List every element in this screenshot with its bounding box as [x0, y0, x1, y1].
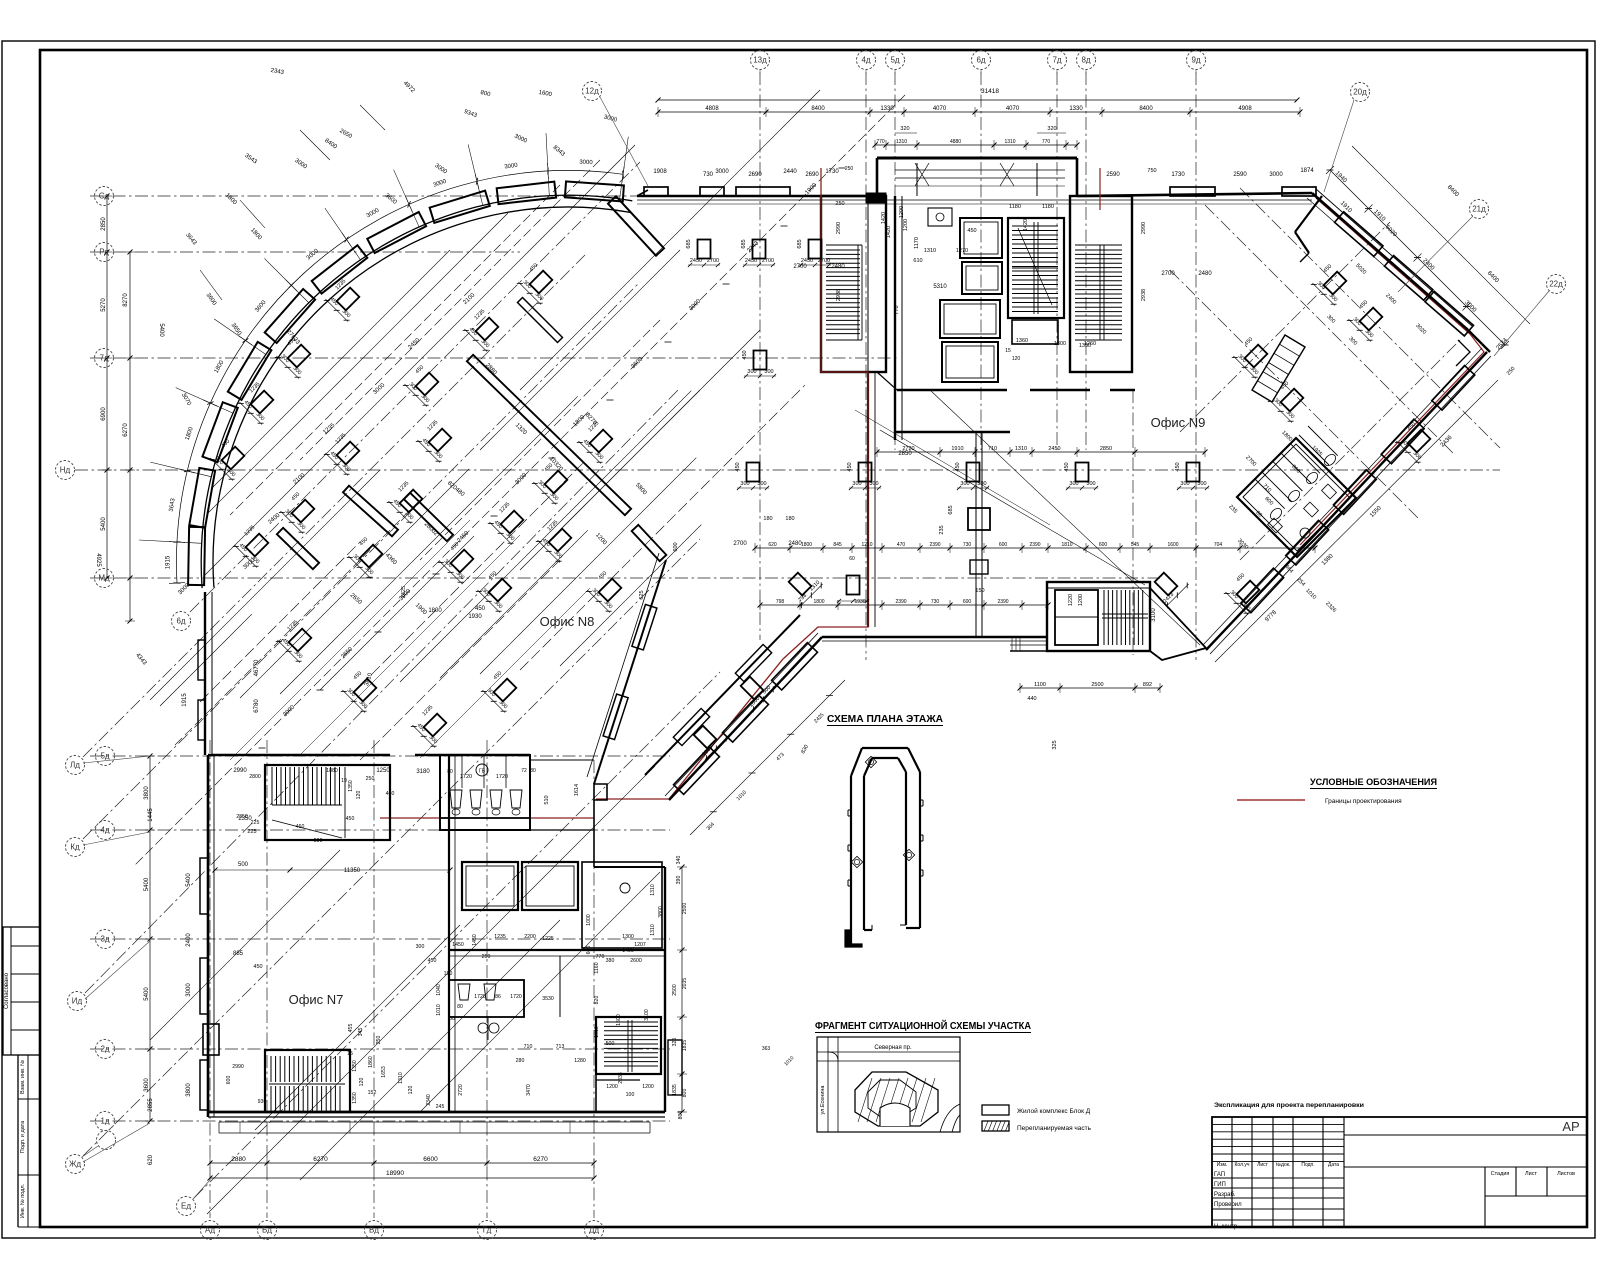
svg-text:1200: 1200	[899, 206, 905, 218]
svg-text:2425: 2425	[401, 586, 407, 598]
svg-text:Ед: Ед	[181, 1202, 191, 1211]
svg-text:770: 770	[876, 139, 885, 145]
svg-text:2880: 2880	[231, 1156, 246, 1163]
svg-text:4070: 4070	[1006, 106, 1020, 112]
svg-text:250: 250	[835, 201, 844, 207]
svg-text:180: 180	[763, 516, 772, 522]
svg-text:Границы проектирования: Границы проектирования	[1325, 798, 1402, 805]
svg-text:730: 730	[703, 172, 714, 178]
svg-text:2200: 2200	[524, 934, 536, 940]
svg-text:1350: 1350	[348, 780, 354, 792]
svg-text:1180: 1180	[1042, 204, 1054, 210]
svg-text:60: 60	[849, 556, 855, 562]
svg-text:1800: 1800	[428, 608, 442, 614]
svg-text:380: 380	[606, 958, 615, 964]
svg-text:Стадия: Стадия	[1491, 1171, 1510, 1177]
svg-text:АР: АР	[1562, 1119, 1579, 1134]
svg-text:3д: 3д	[100, 935, 109, 944]
svg-text:2700: 2700	[733, 541, 747, 547]
svg-text:1400: 1400	[622, 948, 634, 954]
svg-text:685: 685	[741, 239, 747, 248]
svg-text:2450: 2450	[745, 258, 757, 264]
svg-text:5д: 5д	[100, 752, 109, 761]
svg-text:1730: 1730	[825, 169, 839, 175]
svg-text:300: 300	[416, 944, 425, 950]
svg-text:Офис N9: Офис N9	[1151, 415, 1206, 430]
svg-text:1600: 1600	[1167, 542, 1178, 548]
svg-text:1350: 1350	[1079, 343, 1091, 349]
svg-text:8д: 8д	[1081, 56, 1090, 65]
svg-text:11350: 11350	[344, 868, 361, 874]
svg-text:2450: 2450	[690, 258, 702, 264]
svg-text:120: 120	[1012, 356, 1021, 362]
svg-text:1100: 1100	[1034, 682, 1046, 688]
svg-text:3000: 3000	[579, 160, 593, 167]
svg-text:450: 450	[735, 462, 741, 471]
svg-text:152: 152	[368, 1090, 377, 1096]
svg-text:280: 280	[516, 1058, 525, 1064]
svg-text:7д: 7д	[99, 354, 108, 363]
svg-text:Инв. № подл.: Инв. № подл.	[20, 1183, 26, 1218]
svg-text:31418: 31418	[981, 88, 999, 95]
svg-text:300: 300	[977, 481, 986, 487]
svg-text:2480: 2480	[1198, 271, 1212, 277]
svg-text:3100: 3100	[644, 1009, 650, 1021]
svg-text:1653: 1653	[381, 1066, 387, 1078]
svg-text:3800: 3800	[144, 786, 150, 800]
svg-text:3180: 3180	[416, 769, 430, 775]
svg-text:225: 225	[251, 820, 260, 826]
svg-text:22д: 22д	[1549, 280, 1563, 289]
svg-text:4д: 4д	[100, 826, 109, 835]
svg-text:730: 730	[931, 599, 940, 605]
svg-text:2855: 2855	[148, 1098, 154, 1112]
svg-text:1874: 1874	[1300, 168, 1314, 174]
svg-text:450: 450	[475, 606, 486, 612]
svg-text:Кол.уч: Кол.уч	[1235, 1162, 1250, 1168]
svg-text:Северная пр.: Северная пр.	[874, 1045, 912, 1051]
svg-text:704: 704	[1214, 542, 1223, 548]
svg-text:450: 450	[428, 958, 437, 964]
svg-text:770: 770	[1042, 139, 1051, 145]
svg-text:72: 72	[521, 768, 527, 774]
svg-text:1207: 1207	[634, 942, 646, 948]
svg-text:1930: 1930	[468, 614, 482, 620]
svg-text:450: 450	[346, 816, 355, 822]
svg-text:3800: 3800	[186, 1083, 192, 1097]
svg-text:15: 15	[1005, 348, 1011, 354]
svg-text:1915: 1915	[182, 693, 188, 707]
svg-text:2035: 2035	[618, 1072, 624, 1084]
svg-text:610: 610	[913, 258, 922, 264]
svg-text:4070: 4070	[933, 106, 947, 112]
svg-text:2990: 2990	[1141, 222, 1147, 234]
svg-text:455: 455	[348, 1024, 354, 1033]
svg-text:1010: 1010	[436, 1004, 442, 1016]
svg-text:2480: 2480	[788, 541, 802, 547]
svg-text:363: 363	[762, 1046, 771, 1052]
svg-text:2390: 2390	[895, 599, 906, 605]
svg-text:Рд: Рд	[99, 248, 109, 257]
svg-text:Вд: Вд	[369, 1226, 379, 1235]
svg-text:1330: 1330	[880, 106, 894, 112]
svg-text:1800: 1800	[813, 599, 824, 605]
svg-text:2690: 2690	[748, 172, 762, 178]
svg-text:2720: 2720	[458, 1084, 464, 1096]
svg-text:Жилой комплекс Блок Д: Жилой комплекс Блок Д	[1017, 1107, 1091, 1115]
svg-text:1310: 1310	[650, 924, 656, 936]
svg-text:5400: 5400	[158, 323, 164, 337]
svg-text:450: 450	[1064, 462, 1070, 471]
svg-text:4925: 4925	[95, 553, 101, 567]
svg-text:Офис N8: Офис N8	[540, 614, 595, 629]
svg-text:2500: 2500	[672, 984, 678, 996]
svg-text:730: 730	[963, 542, 972, 548]
svg-text:7д: 7д	[1052, 56, 1061, 65]
svg-text:Листов: Листов	[1557, 1171, 1575, 1177]
svg-text:5400: 5400	[144, 987, 150, 1001]
svg-text:Дата: Дата	[1328, 1162, 1339, 1168]
svg-text:1420: 1420	[1023, 219, 1029, 231]
svg-text:1270: 1270	[956, 248, 968, 254]
svg-text:1310: 1310	[398, 1072, 404, 1084]
svg-text:1д: 1д	[100, 1117, 109, 1126]
svg-text:250: 250	[366, 776, 375, 782]
svg-text:600: 600	[586, 946, 592, 955]
svg-text:685: 685	[948, 505, 954, 514]
svg-text:2590: 2590	[1233, 172, 1247, 178]
svg-text:450: 450	[955, 462, 961, 471]
svg-text:510: 510	[544, 795, 550, 804]
svg-text:225: 225	[247, 829, 256, 835]
svg-text:710: 710	[524, 1044, 533, 1050]
svg-text:ул.Есенина: ул.Есенина	[820, 1085, 826, 1115]
svg-text:3470: 3470	[526, 1084, 532, 1096]
svg-text:1170: 1170	[914, 237, 920, 249]
svg-text:1445: 1445	[148, 808, 154, 822]
svg-text:21д: 21д	[1472, 205, 1486, 214]
svg-text:Кд: Кд	[70, 843, 80, 852]
svg-text:1730: 1730	[1171, 172, 1185, 178]
svg-text:1200: 1200	[606, 1084, 618, 1090]
svg-text:620: 620	[768, 542, 777, 548]
svg-text:ФРАГМЕНТ СИТУАЦИОННОЙ СХЕМЫ: ФРАГМЕНТ СИТУАЦИОННОЙ СХЕМЫ УЧАСТКА	[815, 1019, 1031, 1032]
svg-text:2400: 2400	[186, 933, 192, 947]
svg-text:Подп. и дата: Подп. и дата	[20, 1120, 26, 1153]
svg-text:100: 100	[626, 1092, 635, 1098]
svg-text:600: 600	[673, 542, 679, 551]
svg-text:2850: 2850	[101, 217, 107, 231]
svg-text:1280: 1280	[574, 1058, 586, 1064]
svg-text:18990: 18990	[386, 1170, 404, 1177]
svg-text:2700: 2700	[818, 258, 830, 264]
svg-text:3000: 3000	[186, 983, 192, 997]
svg-text:1310: 1310	[924, 248, 936, 254]
svg-text:Разраб.: Разраб.	[1214, 1192, 1236, 1198]
svg-text:5270: 5270	[101, 298, 107, 312]
svg-text:930: 930	[258, 1099, 267, 1105]
svg-text:1908: 1908	[653, 169, 667, 175]
svg-text:245: 245	[436, 1104, 445, 1110]
svg-text:2850: 2850	[898, 451, 912, 457]
svg-text:1300: 1300	[622, 934, 634, 940]
svg-text:Мд: Мд	[98, 574, 110, 583]
svg-text:№док.: №док.	[1276, 1162, 1291, 1168]
svg-text:4808: 4808	[705, 106, 719, 112]
svg-text:1200: 1200	[1078, 594, 1084, 606]
svg-text:2500: 2500	[682, 903, 688, 915]
svg-text:1000: 1000	[586, 914, 592, 926]
svg-text:1235: 1235	[494, 934, 506, 940]
svg-text:Изм.: Изм.	[1217, 1162, 1228, 1168]
svg-text:545: 545	[1131, 542, 1140, 548]
svg-text:300: 300	[1197, 481, 1206, 487]
svg-text:250: 250	[845, 166, 854, 172]
svg-text:Лист: Лист	[1525, 1171, 1537, 1177]
svg-text:300: 300	[1086, 481, 1095, 487]
svg-text:Подп.: Подп.	[1301, 1162, 1314, 1168]
svg-text:СХЕМА ПЛАНА ЭТАЖА: СХЕМА ПЛАНА ЭТАЖА	[827, 713, 943, 725]
svg-text:Перепланируемая часть: Перепланируемая часть	[1017, 1125, 1092, 1132]
svg-text:1880: 1880	[326, 768, 338, 774]
svg-text:1040: 1040	[436, 984, 442, 996]
svg-text:625: 625	[639, 590, 645, 599]
svg-text:1200: 1200	[642, 1084, 654, 1090]
svg-text:2390: 2390	[929, 542, 940, 548]
svg-text:300: 300	[1069, 481, 1078, 487]
svg-text:9д: 9д	[1191, 56, 1200, 65]
svg-text:2938: 2938	[836, 289, 842, 301]
svg-text:300: 300	[1180, 481, 1189, 487]
svg-text:1310: 1310	[650, 884, 656, 896]
svg-text:120: 120	[356, 791, 362, 800]
svg-text:180: 180	[785, 516, 794, 522]
svg-text:Нд: Нд	[60, 466, 71, 475]
svg-text:120: 120	[408, 1086, 414, 1095]
svg-text:500: 500	[314, 838, 323, 844]
svg-text:6270: 6270	[533, 1156, 548, 1163]
svg-text:450: 450	[742, 350, 748, 359]
svg-text:800: 800	[682, 1089, 688, 1098]
svg-text:300: 300	[960, 481, 969, 487]
svg-text:8270: 8270	[123, 293, 129, 307]
svg-text:80: 80	[457, 1004, 463, 1010]
svg-text:1450: 1450	[452, 942, 464, 948]
svg-text:820: 820	[594, 996, 600, 1005]
svg-text:325: 325	[672, 1038, 678, 1047]
svg-text:685: 685	[686, 239, 692, 248]
svg-text:1210: 1210	[861, 542, 872, 548]
svg-text:6900: 6900	[101, 407, 107, 421]
svg-text:8400: 8400	[811, 106, 825, 112]
svg-text:Жд: Жд	[69, 1160, 81, 1169]
svg-text:Проверил: Проверил	[1214, 1202, 1242, 1208]
svg-text:250: 250	[482, 954, 491, 960]
svg-text:1835: 1835	[682, 1040, 688, 1052]
svg-text:1360: 1360	[1016, 338, 1028, 344]
svg-text:1500: 1500	[616, 1014, 622, 1026]
svg-text:710: 710	[988, 446, 997, 452]
svg-text:3600: 3600	[144, 1078, 150, 1092]
svg-text:798: 798	[776, 599, 785, 605]
svg-text:2590: 2590	[1106, 172, 1120, 178]
svg-text:450: 450	[967, 228, 976, 234]
svg-text:5д: 5д	[890, 56, 899, 65]
svg-text:1720: 1720	[510, 994, 522, 1000]
svg-text:2700: 2700	[762, 258, 774, 264]
svg-text:470: 470	[897, 542, 906, 548]
svg-text:6600: 6600	[423, 1156, 438, 1163]
svg-text:450: 450	[253, 964, 262, 970]
svg-text:8400: 8400	[1139, 106, 1153, 112]
svg-text:1800: 1800	[801, 542, 812, 548]
svg-text:500: 500	[238, 862, 249, 868]
svg-text:770: 770	[596, 954, 605, 960]
svg-text:2450: 2450	[1048, 446, 1060, 452]
svg-text:600: 600	[1099, 542, 1108, 548]
svg-text:300: 300	[757, 481, 766, 487]
svg-text:Экспликация для проекта перепл: Экспликация для проекта перепланировки	[1214, 1102, 1364, 1109]
svg-text:300: 300	[852, 481, 861, 487]
svg-text:1160: 1160	[594, 962, 600, 973]
svg-text:2990: 2990	[233, 768, 247, 774]
svg-text:Дд: Дд	[589, 1226, 599, 1235]
svg-text:1225: 1225	[542, 936, 554, 942]
svg-text:Ад: Ад	[205, 1226, 215, 1235]
svg-text:390: 390	[676, 876, 682, 885]
svg-text:450: 450	[1175, 462, 1181, 471]
svg-text:150: 150	[975, 588, 984, 594]
svg-text:2850: 2850	[1100, 446, 1112, 452]
svg-text:3000: 3000	[715, 169, 729, 175]
svg-text:750: 750	[1147, 168, 1156, 174]
svg-text:2350: 2350	[236, 814, 248, 820]
svg-text:2500: 2500	[1091, 682, 1103, 688]
svg-text:685: 685	[797, 239, 803, 248]
svg-text:4д: 4д	[861, 56, 870, 65]
svg-text:ГИП: ГИП	[1214, 1182, 1226, 1188]
svg-text:892: 892	[1143, 682, 1152, 688]
svg-text:1910: 1910	[951, 446, 963, 452]
svg-text:6780: 6780	[254, 699, 260, 713]
svg-text:6д: 6д	[176, 617, 185, 626]
svg-text:1180: 1180	[1009, 204, 1021, 210]
svg-text:460: 460	[296, 824, 305, 830]
svg-text:1810: 1810	[1061, 542, 1072, 548]
svg-text:2д: 2д	[100, 1045, 109, 1054]
svg-text:Согласовано: Согласовано	[4, 972, 10, 1009]
svg-text:1420: 1420	[881, 212, 887, 224]
svg-text:235: 235	[939, 525, 945, 534]
svg-text:5400: 5400	[144, 877, 150, 891]
svg-text:2700: 2700	[707, 258, 719, 264]
svg-text:2480: 2480	[831, 264, 845, 270]
svg-text:440: 440	[1027, 696, 1036, 702]
svg-text:60: 60	[449, 1016, 455, 1022]
svg-text:Офис N7: Офис N7	[289, 992, 344, 1007]
svg-text:1915: 1915	[166, 555, 172, 569]
svg-text:2440: 2440	[783, 169, 797, 175]
svg-text:340: 340	[676, 856, 682, 865]
svg-text:УСЛОВНЫЕ ОБОЗНАЧЕНИЯ: УСЛОВНЫЕ ОБОЗНАЧЕНИЯ	[1310, 777, 1437, 788]
svg-text:600: 600	[226, 1076, 232, 1085]
svg-text:6д: 6д	[976, 56, 985, 65]
svg-text:2800: 2800	[249, 774, 261, 780]
svg-text:46770: 46770	[254, 659, 260, 676]
svg-text:5400: 5400	[101, 517, 107, 531]
svg-text:2990: 2990	[232, 1064, 244, 1070]
svg-text:20д: 20д	[1353, 88, 1367, 97]
svg-text:3100: 3100	[1151, 608, 1157, 622]
svg-text:Лд: Лд	[70, 761, 80, 770]
svg-text:ГАП: ГАП	[1214, 1172, 1225, 1178]
svg-text:600: 600	[963, 599, 972, 605]
svg-text:2990: 2990	[836, 222, 842, 234]
svg-text:1614: 1614	[574, 784, 580, 796]
svg-text:1310: 1310	[1015, 446, 1027, 452]
svg-text:Лист: Лист	[1257, 1162, 1269, 1168]
svg-text:2390: 2390	[1029, 542, 1040, 548]
svg-text:1310: 1310	[1004, 139, 1015, 145]
svg-text:5400: 5400	[186, 873, 192, 887]
svg-text:1350: 1350	[352, 1092, 358, 1104]
svg-text:1200: 1200	[903, 219, 909, 231]
svg-text:2600: 2600	[630, 958, 642, 964]
svg-text:1310: 1310	[896, 139, 907, 145]
svg-text:1420: 1420	[886, 226, 892, 238]
svg-text:300: 300	[764, 369, 773, 375]
svg-text:300: 300	[740, 481, 749, 487]
svg-text:4880: 4880	[950, 139, 961, 145]
svg-text:320: 320	[1047, 126, 1056, 132]
svg-text:6270: 6270	[123, 423, 129, 437]
svg-text:2690: 2690	[805, 172, 819, 178]
svg-text:1720: 1720	[474, 994, 486, 1000]
svg-text:300: 300	[747, 369, 756, 375]
svg-text:Н. контр.: Н. контр.	[1214, 1224, 1239, 1230]
svg-text:450: 450	[847, 462, 853, 471]
svg-text:1010: 1010	[594, 1026, 600, 1038]
svg-text:5310: 5310	[933, 284, 947, 290]
svg-text:1835: 1835	[672, 1084, 678, 1096]
svg-text:620: 620	[148, 1154, 154, 1165]
svg-text:3800: 3800	[658, 906, 664, 918]
svg-text:120: 120	[359, 1078, 365, 1087]
svg-text:2938: 2938	[1141, 289, 1147, 301]
svg-text:460: 460	[386, 791, 395, 797]
svg-text:Сд: Сд	[99, 192, 110, 201]
svg-text:1330: 1330	[1069, 106, 1083, 112]
svg-text:80: 80	[530, 768, 536, 774]
svg-text:500: 500	[606, 1041, 615, 1047]
svg-text:713: 713	[556, 1044, 565, 1050]
svg-text:1930: 1930	[854, 599, 865, 605]
svg-text:19: 19	[341, 778, 347, 784]
svg-text:600: 600	[999, 542, 1008, 548]
svg-text:325: 325	[1052, 740, 1058, 749]
svg-text:1250: 1250	[376, 768, 390, 774]
svg-text:320: 320	[900, 126, 909, 132]
svg-text:2700: 2700	[793, 264, 807, 270]
svg-text:3530: 3530	[542, 996, 554, 1002]
svg-text:Гд: Гд	[483, 1226, 492, 1235]
svg-text:300: 300	[869, 481, 878, 487]
svg-text:Бд: Бд	[262, 1226, 272, 1235]
svg-text:345: 345	[358, 1028, 364, 1037]
svg-text:1220: 1220	[1068, 594, 1074, 606]
svg-text:2340: 2340	[426, 1094, 432, 1106]
svg-text:12д: 12д	[585, 87, 599, 96]
